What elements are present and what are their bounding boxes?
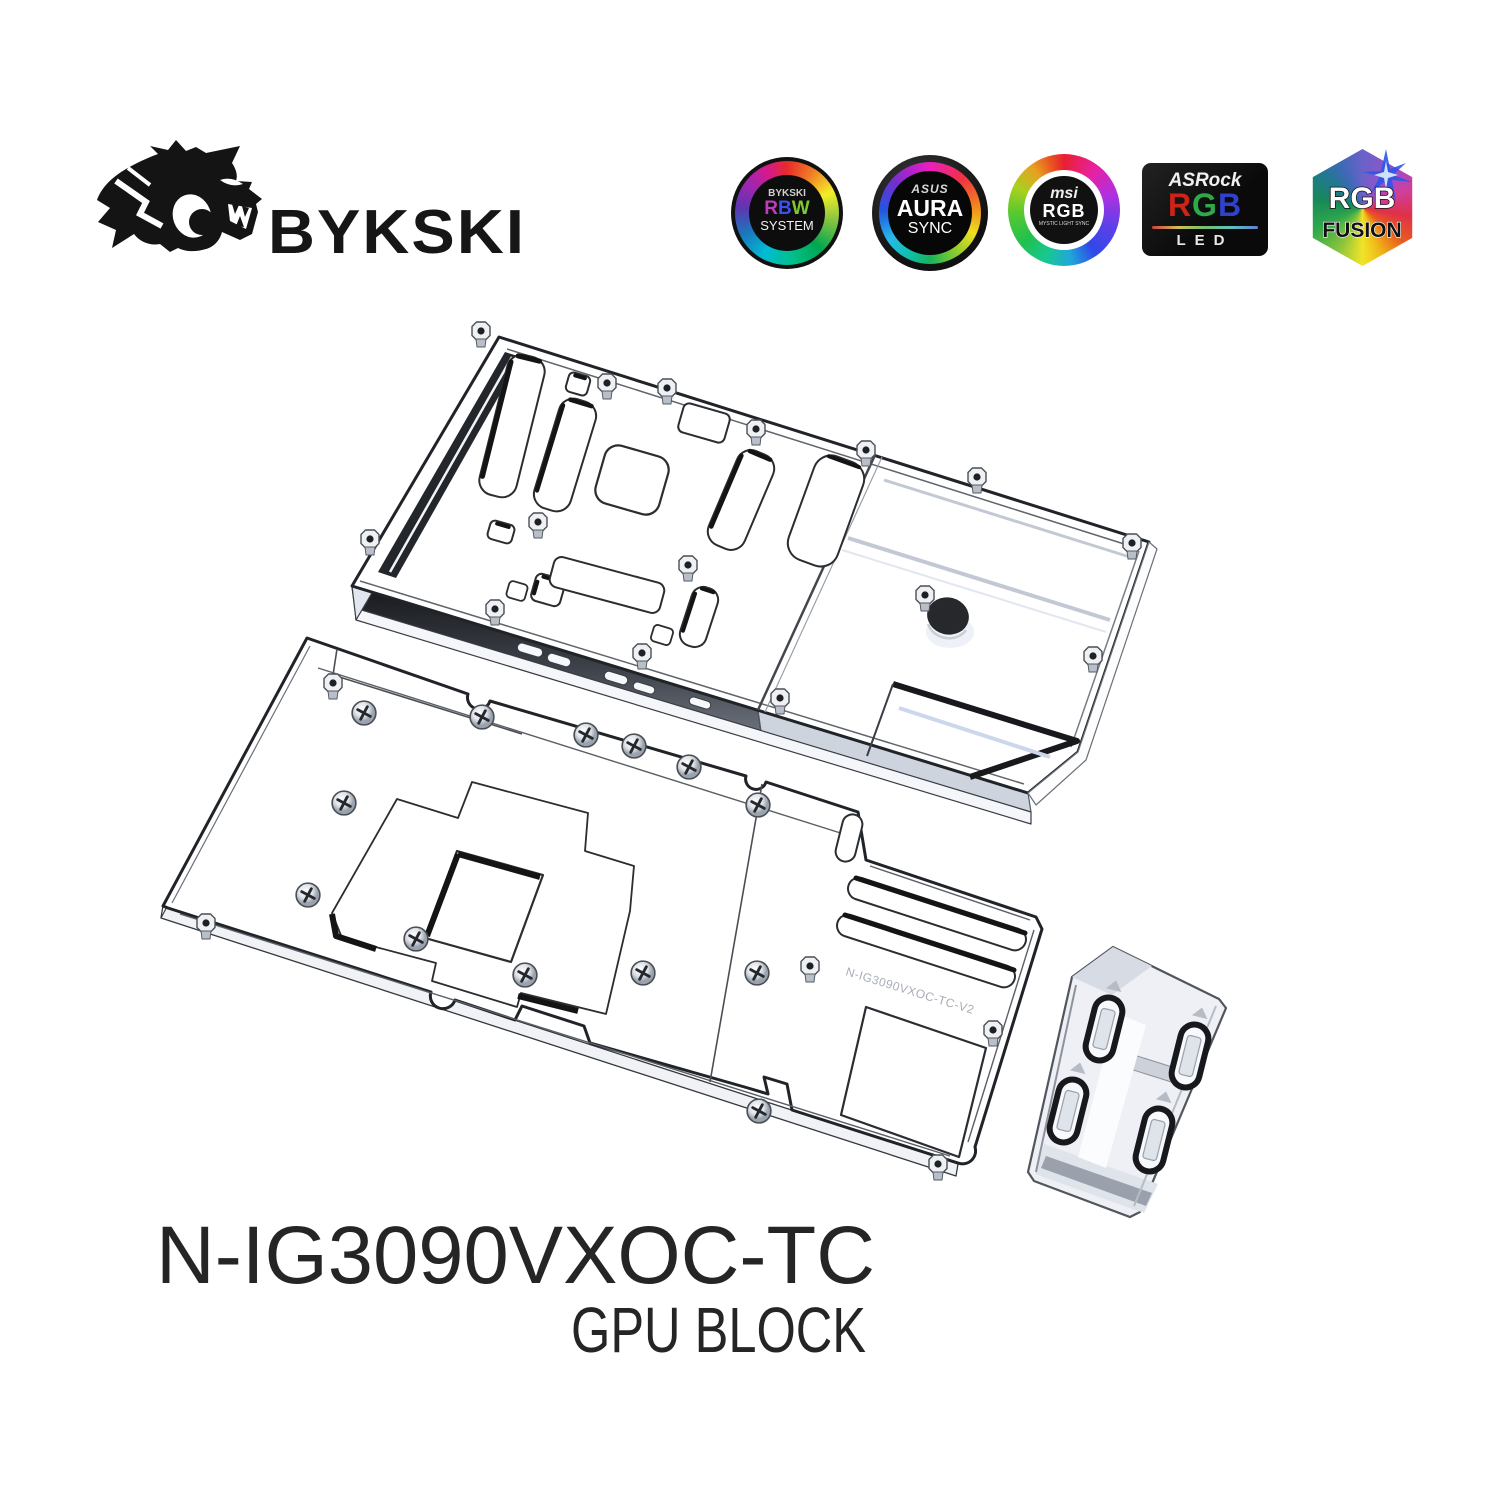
svg-text:GPU BLOCK: GPU BLOCK [571, 1294, 866, 1366]
svg-text:N-IG3090VXOC-TC: N-IG3090VXOC-TC [156, 1210, 875, 1301]
svg-text:BYKSKI: BYKSKI [268, 198, 526, 267]
